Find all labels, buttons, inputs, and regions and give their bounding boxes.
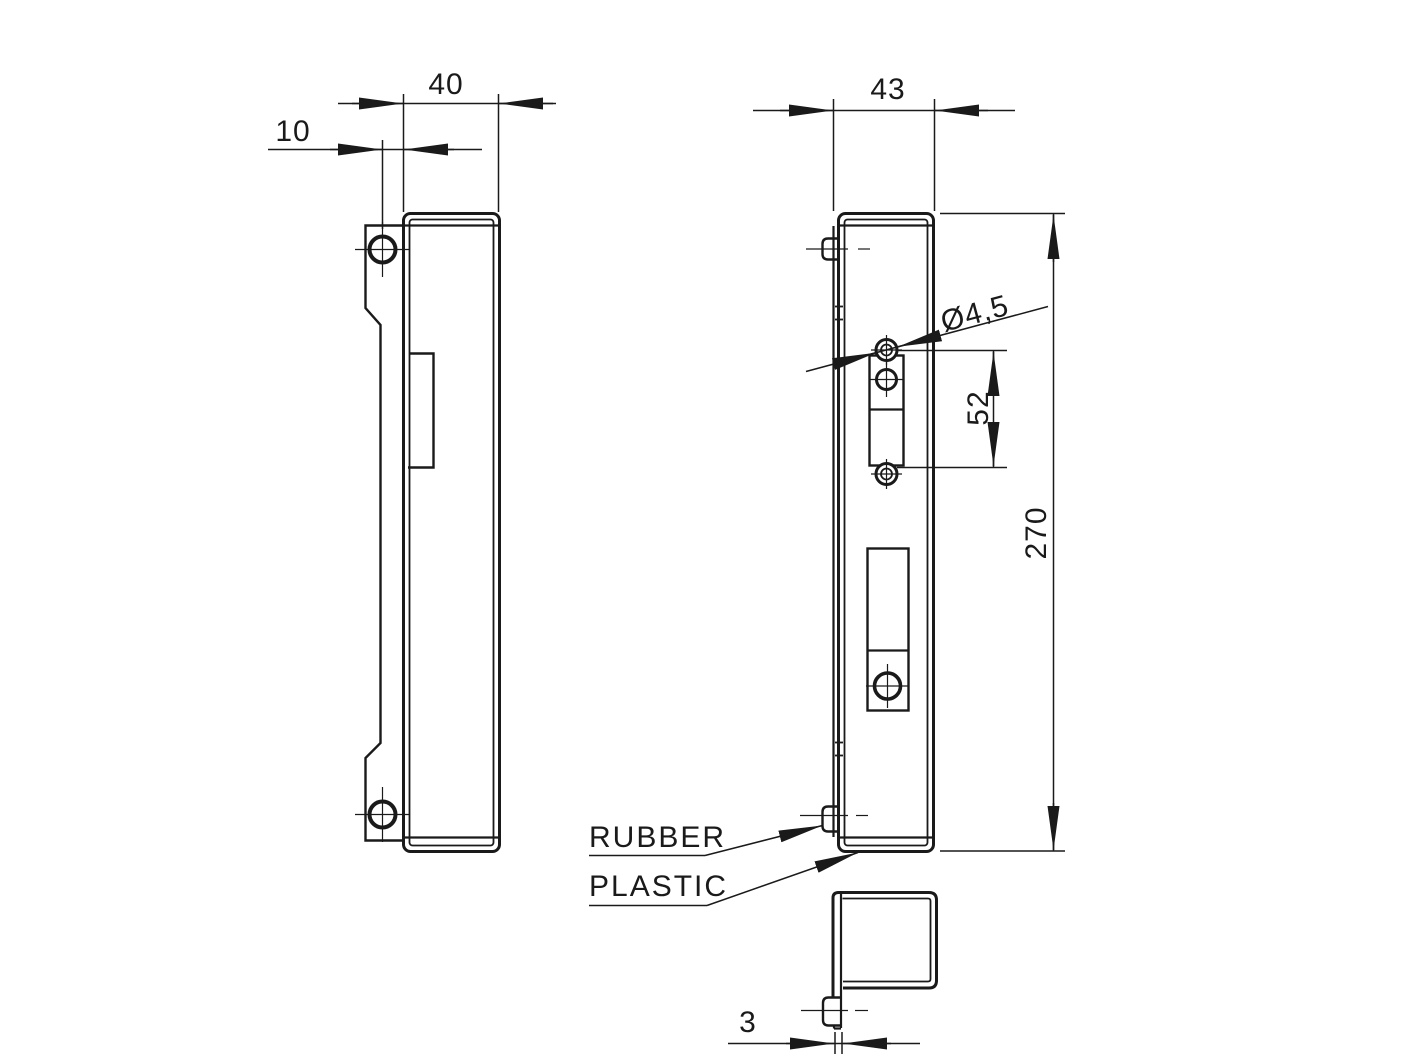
dim-label-43: 43 [870, 73, 905, 106]
front-latch-recess [408, 354, 434, 468]
front-mounting-flange [366, 226, 406, 841]
slot-screw-bottom [871, 459, 902, 489]
dim-label-3: 3 [739, 1006, 757, 1039]
dimension-depth-43: 43 [753, 73, 1015, 211]
dim-label-diameter: Ø4,5 [937, 289, 1012, 339]
side-body-outline [839, 214, 934, 852]
detail-view [801, 893, 937, 1029]
front-screw-hole-bottom [355, 787, 410, 842]
side-view [800, 214, 934, 852]
dimension-width-40: 40 [338, 68, 556, 212]
side-screw-slot [869, 335, 904, 489]
side-latch-pocket [866, 549, 909, 711]
arrowhead [898, 337, 936, 347]
plastic-label: PLASTIC [589, 870, 728, 903]
front-body-outline [404, 214, 500, 852]
rubber-label: RUBBER [589, 821, 726, 854]
dim-label-10: 10 [275, 115, 310, 148]
dimension-hole-offset-10: 10 [268, 115, 482, 229]
front-body-inner-line [410, 220, 494, 846]
dim-label-52: 52 [962, 390, 995, 425]
detail-block-inner-line [843, 899, 931, 982]
slot-hole-middle [869, 362, 904, 397]
dim-label-270: 270 [1020, 506, 1053, 559]
front-screw-hole-top [355, 222, 410, 277]
dim-label-40: 40 [428, 68, 463, 101]
callout-rubber: RUBBER [589, 821, 823, 856]
dimension-hole-spacing-52: 52 [896, 351, 1007, 468]
technical-drawing-page: 40 10 [0, 0, 1417, 1063]
side-body-inner-line [845, 220, 928, 846]
callout-leader [707, 853, 858, 906]
front-view [355, 214, 500, 852]
drawing-svg: 40 10 [0, 0, 1417, 1063]
callout-plastic: PLASTIC [589, 853, 858, 906]
detail-rubber-tab [823, 998, 841, 1026]
